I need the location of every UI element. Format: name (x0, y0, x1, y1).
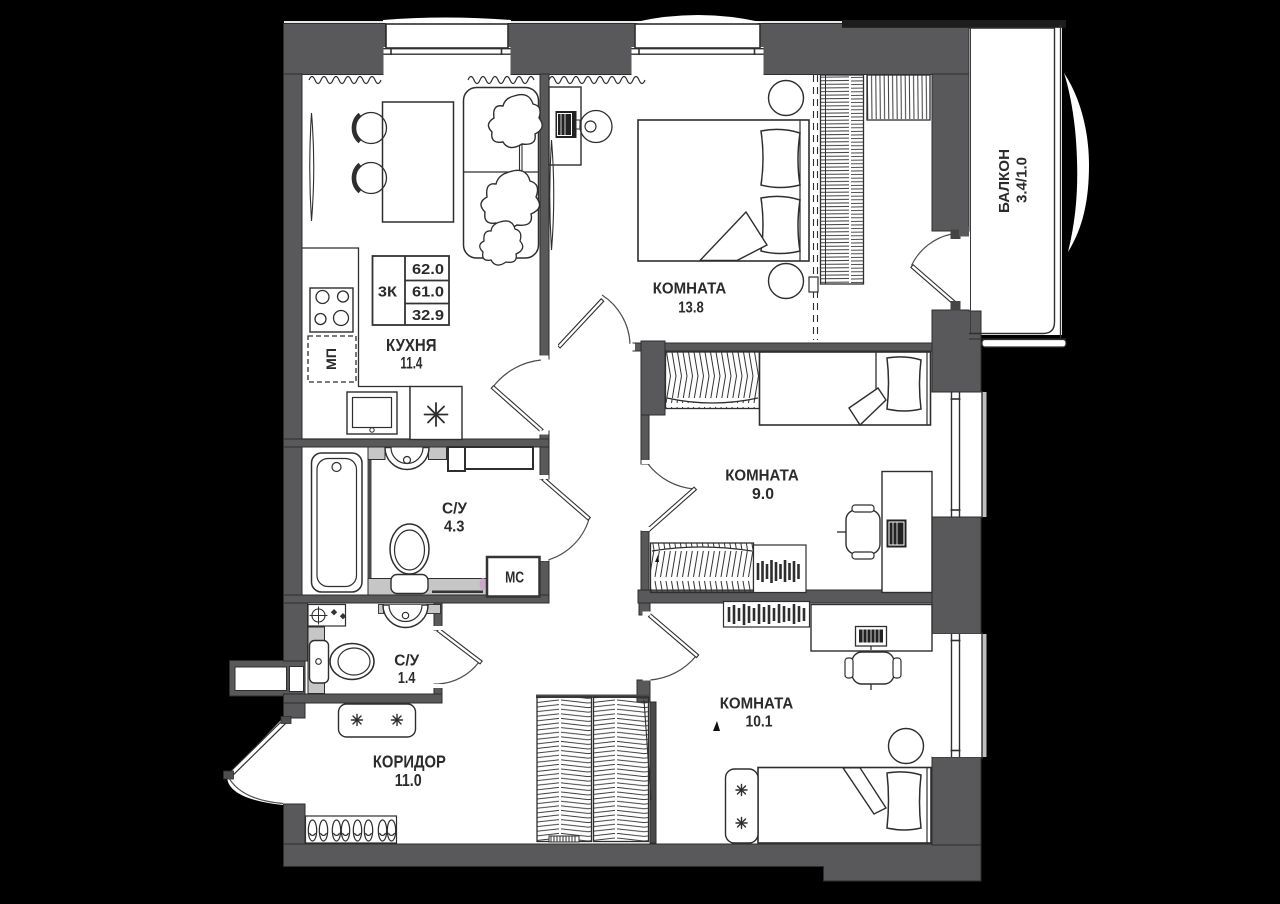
svg-text:3К: 3К (378, 285, 397, 301)
svg-text:62.0: 62.0 (412, 262, 444, 278)
svg-text:32.9: 32.9 (412, 308, 444, 324)
svg-text:КОРИДОР: КОРИДОР (373, 752, 446, 772)
svg-text:4.3: 4.3 (444, 518, 465, 535)
svg-text:КОМНАТА: КОМНАТА (725, 468, 799, 485)
svg-text:13.8: 13.8 (678, 300, 704, 317)
svg-text:11.4: 11.4 (400, 353, 422, 372)
svg-text:КОМНАТА: КОМНАТА (653, 281, 727, 298)
svg-text:10.1: 10.1 (746, 714, 773, 731)
svg-text:С/У: С/У (394, 652, 420, 669)
svg-text:МС: МС (505, 570, 524, 587)
svg-text:КУХНЯ: КУХНЯ (386, 335, 437, 355)
svg-text:1.4: 1.4 (398, 670, 416, 687)
svg-text:МП: МП (323, 348, 339, 370)
svg-text:11.0: 11.0 (395, 770, 422, 790)
svg-text:61.0: 61.0 (412, 284, 444, 300)
svg-text:С/У: С/У (442, 501, 468, 518)
svg-text:9.0: 9.0 (752, 486, 774, 503)
svg-text:БАЛКОН: БАЛКОН (996, 149, 1013, 213)
svg-text:3.4/1.0: 3.4/1.0 (1014, 157, 1031, 203)
svg-text:КОМНАТА: КОМНАТА (720, 696, 794, 713)
